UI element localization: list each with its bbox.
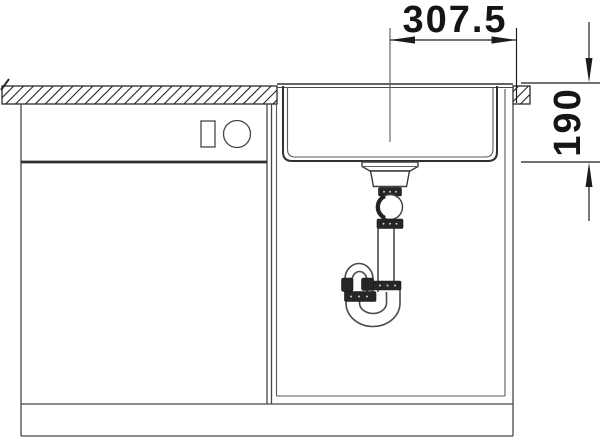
control-panel-rectangle [201,121,215,147]
technical-drawing: 307.5 190 [0,0,600,441]
countertop-right-section [513,86,530,104]
siphon-trap [342,264,402,327]
width-dimension-label: 307.5 [402,0,507,41]
depth-dimension: 190 [521,22,600,221]
plinth [21,404,513,436]
depth-arrow-down [586,58,593,83]
left-cabinet [21,104,267,436]
depth-dimension-label: 190 [547,87,589,156]
trap-union-nut-bottom [345,292,377,302]
drain-assembly [362,162,418,292]
drawing-canvas: 307.5 190 [0,0,600,441]
trap-nut-right [362,278,374,291]
sink-bowl [283,28,497,161]
depth-arrow-up [586,163,593,188]
control-panel-knob [224,121,251,148]
drain-cup [371,171,410,187]
countertop [1,79,530,104]
sink-cabinet [272,89,514,436]
countertop-left-section [2,86,277,104]
trap-nut-left [342,278,354,292]
